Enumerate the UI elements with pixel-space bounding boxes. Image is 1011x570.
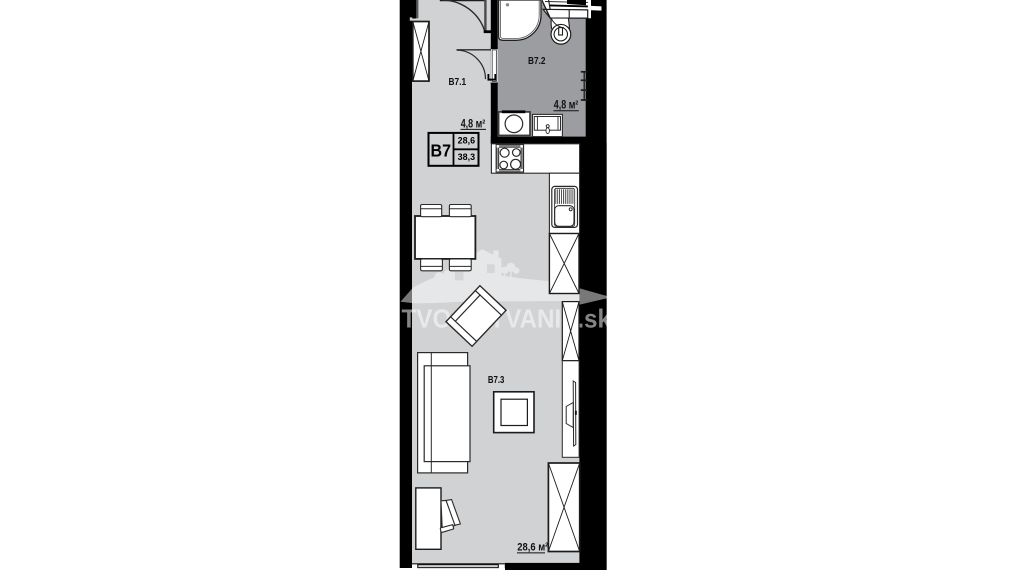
svg-text:B7.1: B7.1 [449,76,467,88]
svg-text:4,8 м²: 4,8 м² [461,119,486,131]
svg-text:38,3: 38,3 [458,152,476,162]
svg-text:B7: B7 [431,141,452,161]
svg-text:28,6 м²: 28,6 м² [517,542,548,554]
svg-text:B7.3: B7.3 [488,374,505,386]
svg-text:B7.2: B7.2 [528,55,546,67]
svg-text:28,6: 28,6 [458,136,476,146]
svg-text:4,8 м²: 4,8 м² [554,99,579,111]
svg-text:TVOJ BYVANIE.sk: TVOJ BYVANIE.sk [402,304,612,334]
